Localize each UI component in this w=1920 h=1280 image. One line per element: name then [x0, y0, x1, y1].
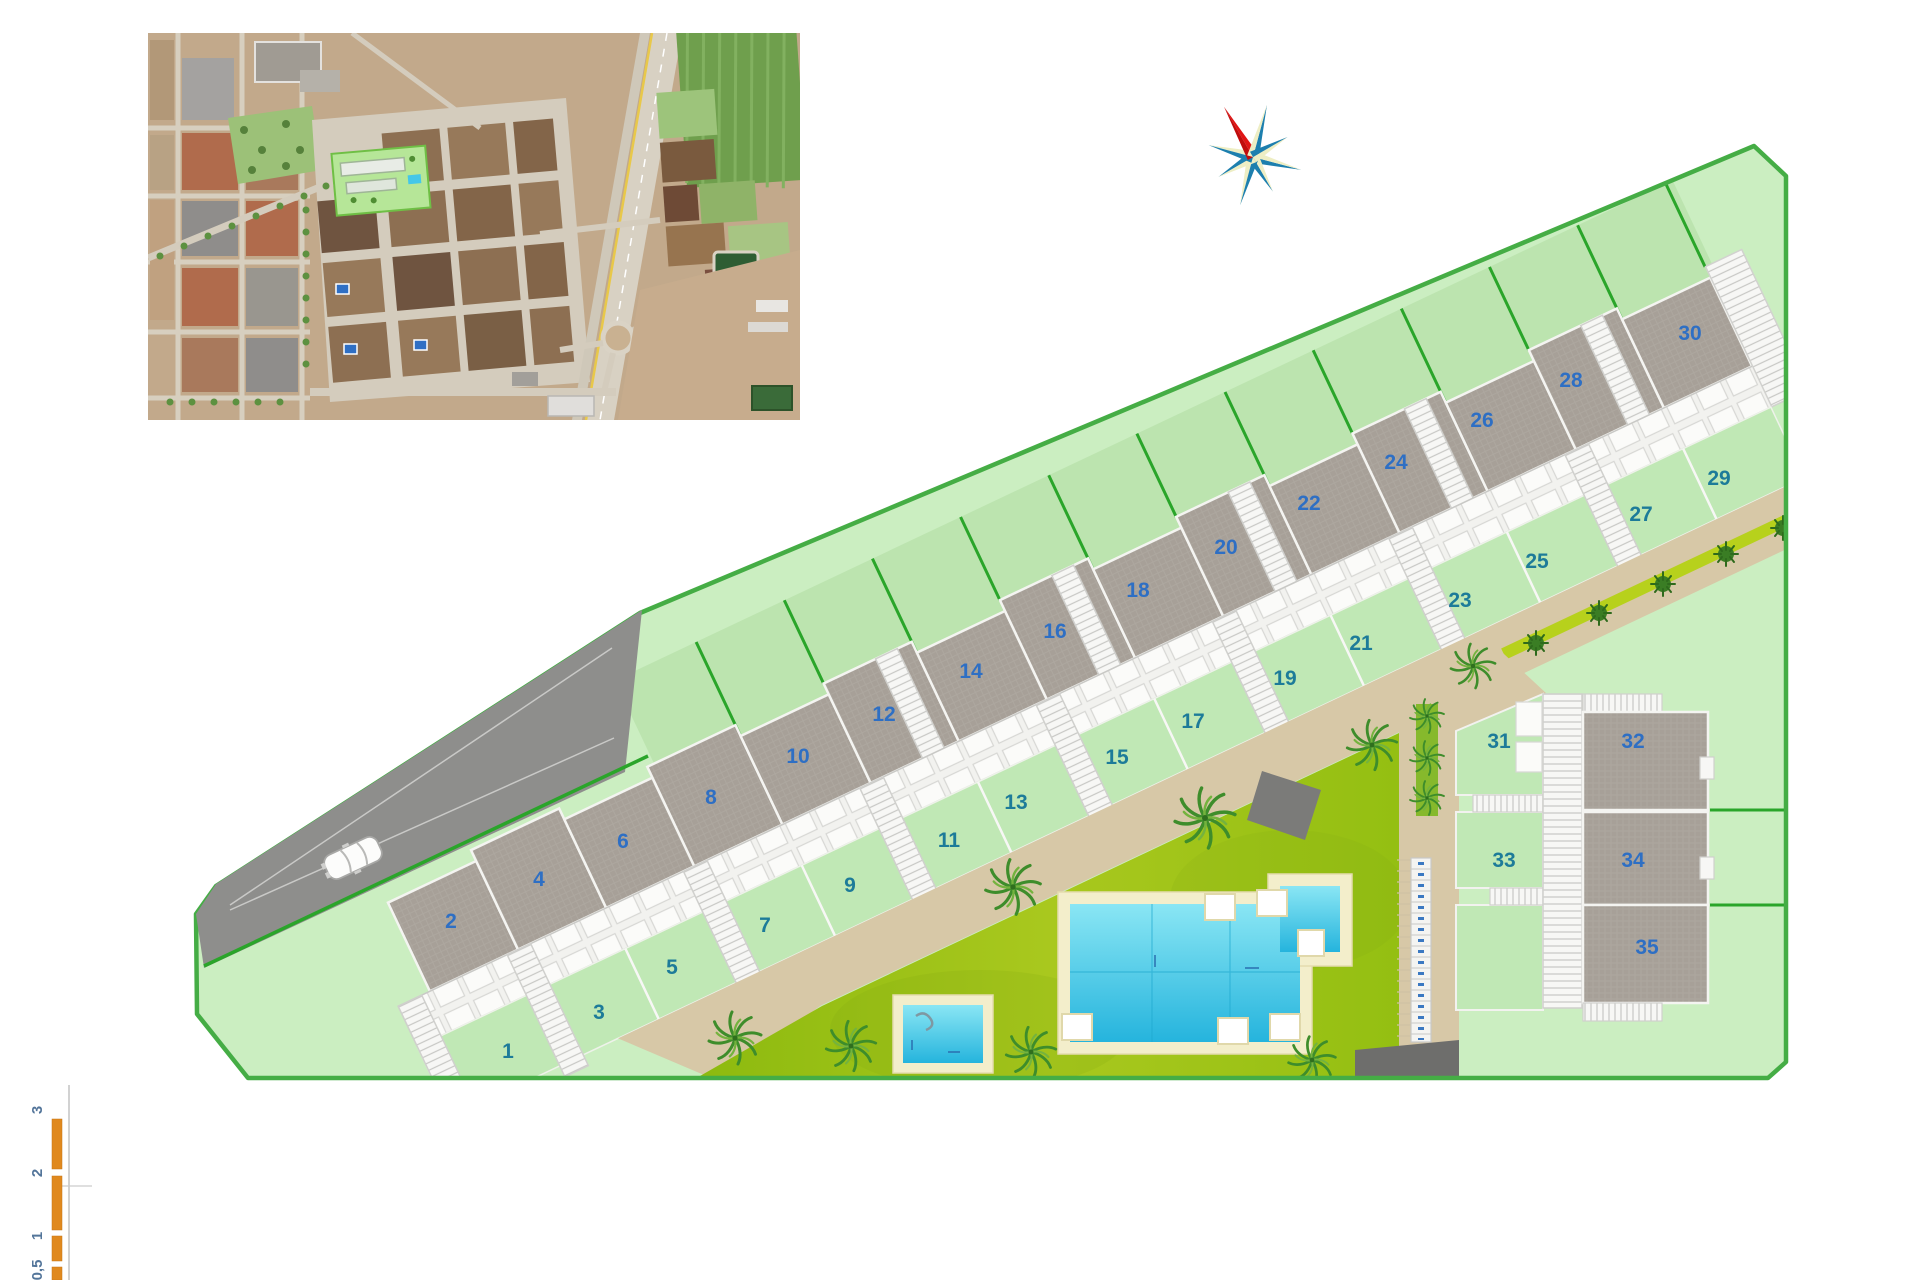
plot-number: 31 [1487, 730, 1511, 753]
plot-number: 12 [872, 703, 895, 726]
block-stair-strip-1 [1473, 795, 1543, 812]
plot-number: 33 [1492, 849, 1515, 872]
aerial-location-map [148, 15, 815, 420]
scale-label: 2 [29, 1169, 46, 1177]
plot-number: 6 [617, 830, 629, 853]
plot-number: 3 [593, 1001, 605, 1024]
plot-number: 5 [666, 956, 678, 979]
roof-32 [1583, 712, 1708, 810]
plot-number: 25 [1525, 550, 1549, 573]
plot-number: 24 [1384, 451, 1408, 474]
plot-number: 22 [1297, 492, 1320, 515]
plot-number: 34 [1621, 849, 1645, 872]
plot-number: 26 [1470, 409, 1493, 432]
plot-number: 23 [1448, 589, 1471, 612]
inset-small-building [512, 372, 538, 386]
roof-34 [1583, 812, 1708, 905]
plot-number: 29 [1707, 467, 1730, 490]
site-plan-canvas: 1 2 3 4 5 6 7 8 9 10 11 12 13 14 15 16 1… [0, 0, 1920, 1280]
plot-number: 19 [1273, 667, 1296, 690]
scale-label: 0,5 [29, 1260, 46, 1280]
inset-warehouse [548, 396, 594, 416]
large-pool [1058, 874, 1352, 1054]
plot-number: 8 [705, 786, 717, 809]
block-stair-column [1543, 694, 1582, 1008]
scale-label: 3 [29, 1106, 46, 1114]
plot-number: 4 [533, 868, 545, 891]
block-top-stairs [1583, 694, 1662, 712]
plot-number: 11 [938, 829, 961, 852]
plot-number: 28 [1559, 369, 1583, 392]
inset-roundabout [603, 323, 633, 353]
plot-number: 35 [1635, 936, 1659, 959]
childrens-pool [893, 995, 993, 1073]
plot-number: 30 [1678, 322, 1701, 345]
plot-number: 15 [1105, 746, 1129, 769]
block-bottom-stairs [1583, 1003, 1662, 1021]
plot-number: 32 [1621, 730, 1644, 753]
inset-development-site [331, 146, 430, 216]
inset-industrial-wing [300, 70, 340, 92]
plot-number: 13 [1004, 791, 1027, 814]
plot-number: 1 [502, 1040, 514, 1063]
plot-number: 20 [1214, 536, 1237, 559]
plot-number: 14 [959, 660, 983, 683]
site-plan-page: 1 2 3 4 5 6 7 8 9 10 11 12 13 14 15 16 1… [0, 0, 1920, 1280]
plot-number: 27 [1629, 503, 1652, 526]
plot-number: 9 [844, 874, 856, 897]
inset-park [228, 106, 322, 184]
plot-number: 18 [1126, 579, 1150, 602]
plot-number: 16 [1043, 620, 1066, 643]
garden-lower [1456, 905, 1543, 1010]
plot-number: 21 [1349, 632, 1373, 655]
plot-number: 17 [1181, 710, 1204, 733]
plot-number: 7 [759, 914, 771, 937]
scale-label: 1 [29, 1232, 46, 1240]
plot-number: 10 [786, 745, 809, 768]
plot-number: 2 [445, 910, 457, 933]
scale-bar-segments [52, 1119, 62, 1280]
